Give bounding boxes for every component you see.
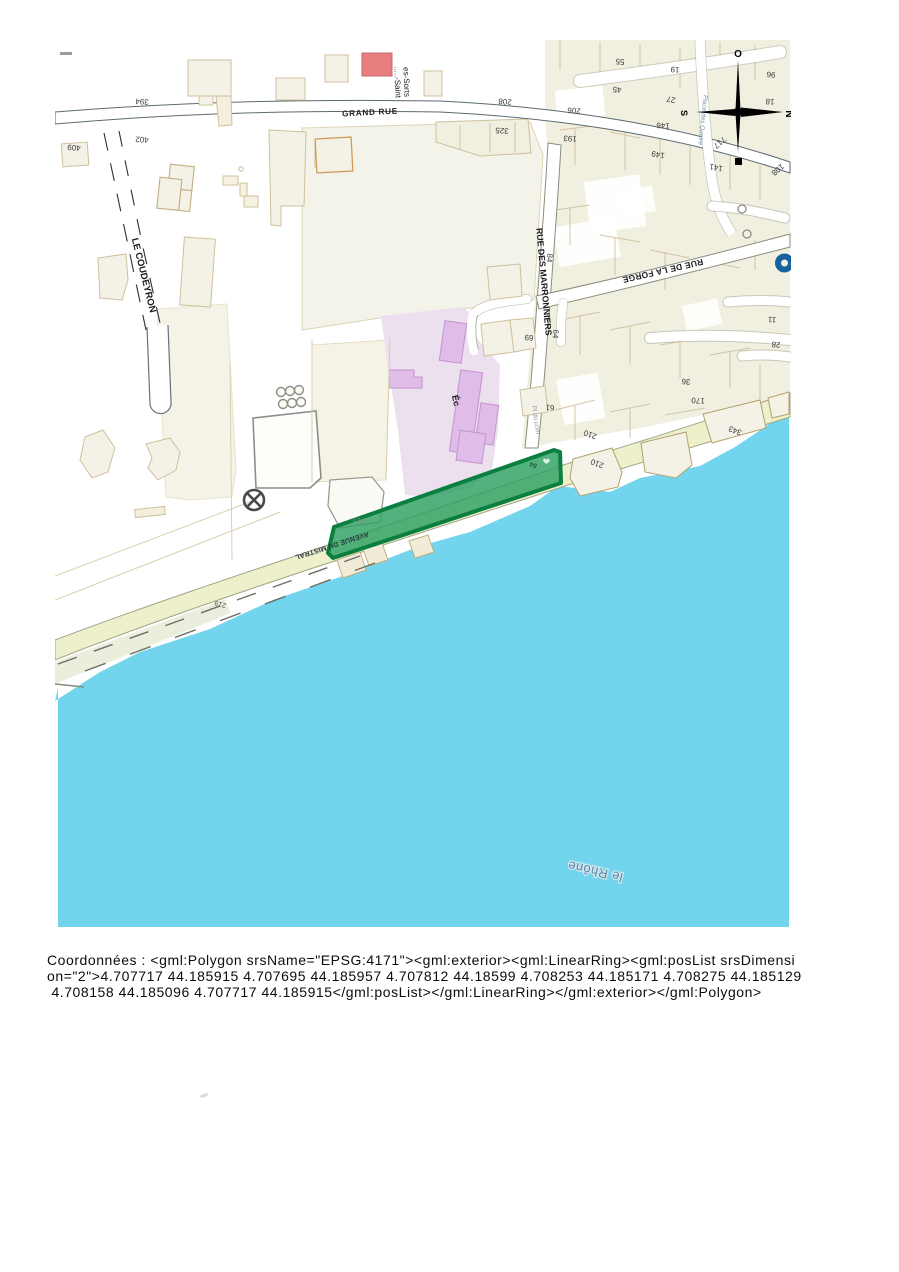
svg-text:18: 18 <box>765 97 775 107</box>
svg-text:394: 394 <box>135 97 149 107</box>
svg-text:193: 193 <box>563 134 577 144</box>
svg-text:69: 69 <box>524 333 534 343</box>
svg-text:96: 96 <box>766 70 776 80</box>
svg-text:146: 146 <box>656 121 670 131</box>
svg-text:402: 402 <box>135 135 149 145</box>
svg-text:206: 206 <box>567 106 581 116</box>
svg-text:170: 170 <box>691 396 705 406</box>
svg-text:84: 84 <box>545 253 555 263</box>
svg-text:208: 208 <box>498 97 512 107</box>
svg-text:.....-Saint: .....-Saint <box>392 66 402 99</box>
svg-text:64: 64 <box>551 329 561 339</box>
svg-text:409: 409 <box>67 143 81 153</box>
svg-text:325: 325 <box>495 126 509 136</box>
svg-text:61: 61 <box>545 403 555 413</box>
svg-text:GRAND RUE: GRAND RUE <box>342 107 398 119</box>
svg-text:36: 36 <box>681 377 691 387</box>
svg-text:Éc: Éc <box>450 394 462 407</box>
svg-text:11: 11 <box>767 315 776 325</box>
svg-text:N: N <box>783 110 794 117</box>
svg-text:19: 19 <box>670 65 680 75</box>
svg-text:O: O <box>734 49 742 60</box>
svg-text:es-Sorts: es-Sorts <box>401 67 411 97</box>
svg-text:28: 28 <box>771 340 781 350</box>
svg-text:45: 45 <box>612 85 622 95</box>
svg-text:S: S <box>679 110 689 116</box>
svg-text:55: 55 <box>615 57 625 67</box>
